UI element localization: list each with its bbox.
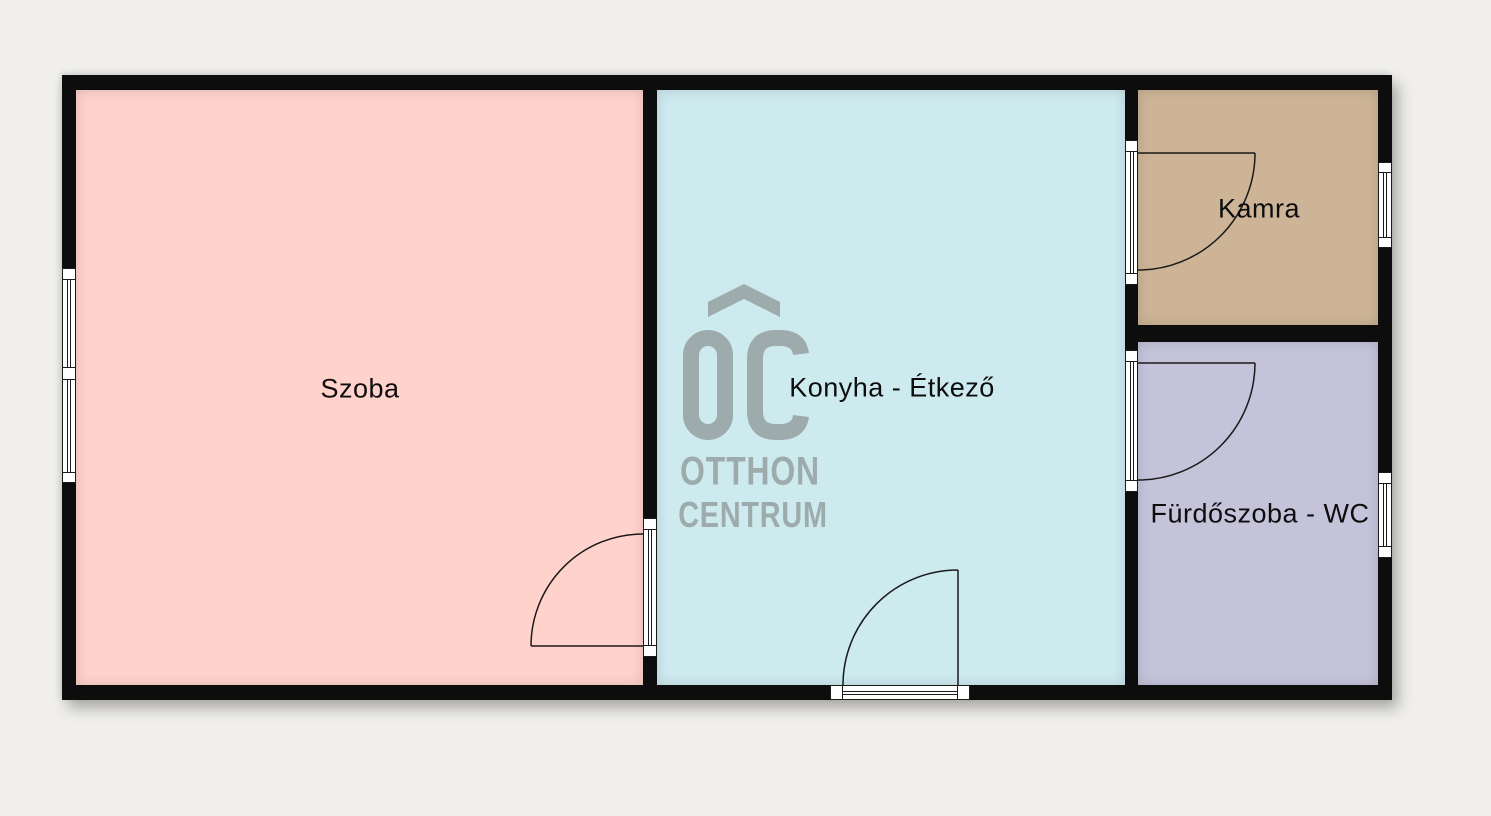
floorplan-canvas: Szoba Konyha - Étkező Kamra Fürdőszoba -… [0,0,1491,816]
monogram-letter-c [755,338,801,432]
watermark: OTTHON CENTRUM [62,75,1392,700]
monogram-letter-o [691,338,725,432]
floorplan-walls: Szoba Konyha - Étkező Kamra Fürdőszoba -… [62,75,1392,700]
watermark-centrum: CENTRUM [678,494,828,536]
watermark-otthon: OTTHON [680,450,820,495]
oc-monogram-icon [680,283,812,442]
roof-chevron-icon [708,284,780,317]
